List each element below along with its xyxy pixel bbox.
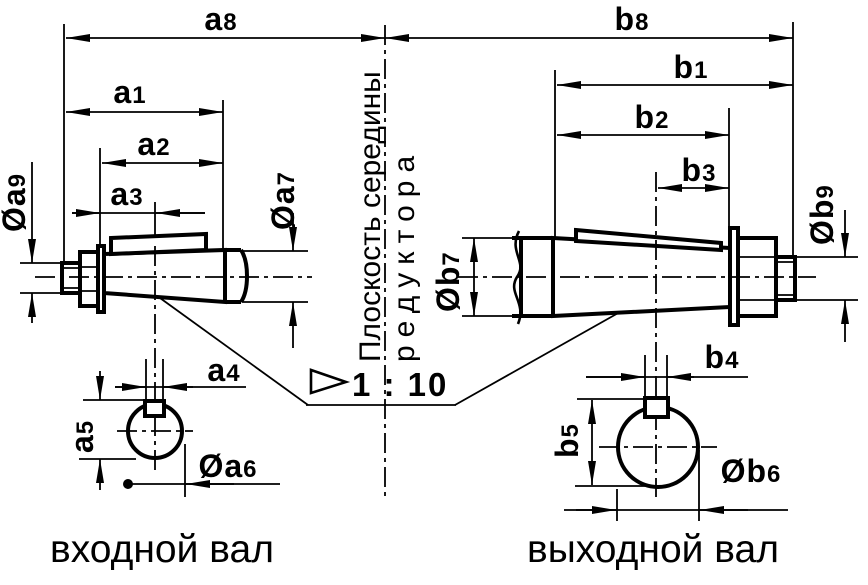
dim-label-b9: Øb9 bbox=[804, 184, 840, 245]
input-cone bbox=[104, 250, 225, 302]
captions: входной вал выходной вал bbox=[50, 528, 779, 571]
center-plane: Плоскость середины редуктора bbox=[354, 25, 421, 500]
dim-label-a6: Øa6 bbox=[198, 448, 257, 484]
taper-leader-left bbox=[160, 298, 308, 405]
dim-label-a7: Øa7 bbox=[265, 171, 301, 230]
center-plane-label-line1: Плоскость середины bbox=[354, 71, 387, 362]
input-section-view: a4 a5 Øa6 bbox=[64, 352, 280, 497]
dim-label-a8: a8 bbox=[204, 1, 237, 37]
dim-label-a1: a1 bbox=[113, 74, 146, 110]
dim-label-b2: b2 bbox=[635, 99, 670, 135]
output-keyway bbox=[645, 398, 668, 417]
dim-label-a5: a5 bbox=[64, 420, 100, 453]
dim-label-b3: b3 bbox=[682, 152, 717, 188]
dim-label-b8: b8 bbox=[615, 1, 650, 37]
dim-label-a3: a3 bbox=[110, 176, 143, 212]
output-thread-end bbox=[776, 257, 795, 300]
dim-label-a4: a4 bbox=[207, 352, 240, 388]
input-keyway bbox=[145, 401, 164, 416]
length-dimensions: a8 b8 a1 a2 a3 b1 b2 b3 bbox=[66, 1, 793, 213]
input-end-cap bbox=[241, 250, 247, 302]
dim-label-b4: b4 bbox=[705, 339, 740, 375]
drawing-canvas: Плоскость середины редуктора bbox=[0, 0, 868, 585]
dim-label-a9: Øa9 bbox=[0, 173, 32, 232]
dim-dot-a6 bbox=[123, 479, 133, 489]
input-key bbox=[111, 234, 206, 254]
taper-symbol-icon bbox=[311, 370, 346, 393]
dim-label-b5: b5 bbox=[549, 423, 585, 458]
taper-ratio-label: 1 : 10 bbox=[352, 366, 448, 403]
input-nut bbox=[80, 252, 98, 306]
dim-label-b7: Øb7 bbox=[430, 251, 466, 312]
dim-label-b6: Øb6 bbox=[721, 453, 782, 489]
output-shaft-caption: выходной вал bbox=[527, 528, 779, 571]
taper-leader-right bbox=[455, 312, 620, 405]
input-shaft-caption: входной вал bbox=[50, 528, 274, 571]
output-shaft-view bbox=[458, 172, 816, 497]
dim-label-b1: b1 bbox=[674, 49, 709, 85]
output-section-view: b4 b5 Øb6 bbox=[549, 339, 788, 521]
center-plane-label-line2: редуктора bbox=[388, 148, 421, 362]
shaft-drawing: Плоскость середины редуктора bbox=[0, 0, 868, 585]
dim-label-a2: a2 bbox=[137, 126, 170, 162]
